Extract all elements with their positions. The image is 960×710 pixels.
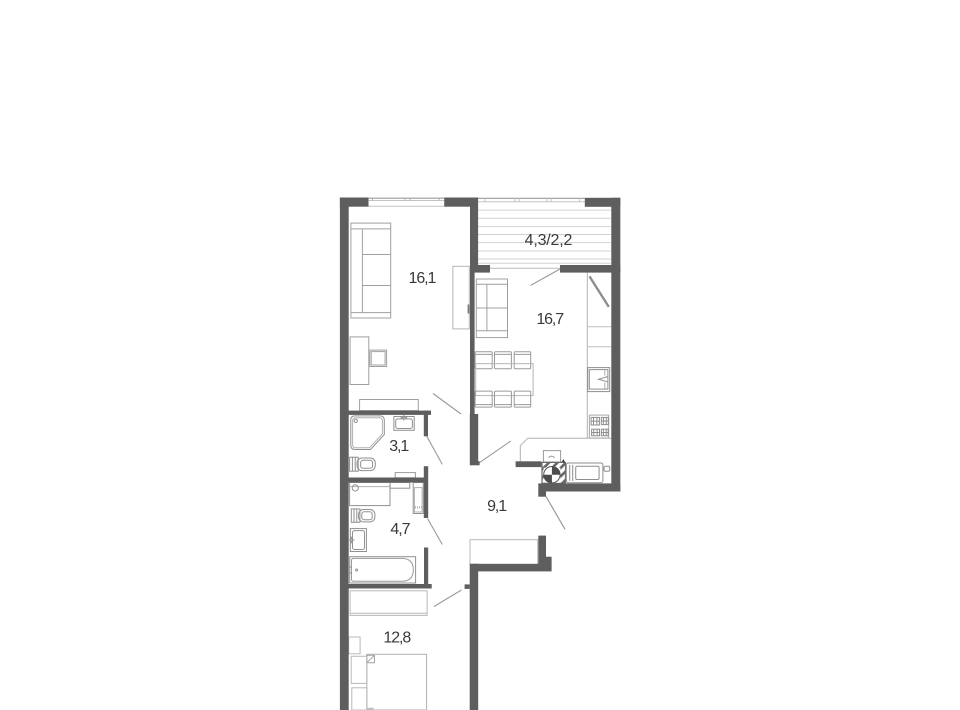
svg-text:4,7: 4,7 (390, 521, 410, 538)
svg-text:16,7: 16,7 (536, 311, 564, 328)
svg-text:9,1: 9,1 (487, 498, 507, 515)
svg-text:4,3/2,2: 4,3/2,2 (525, 232, 573, 249)
svg-text:12,8: 12,8 (383, 630, 411, 647)
svg-text:3,1: 3,1 (389, 438, 409, 455)
svg-text:16,1: 16,1 (409, 270, 437, 287)
